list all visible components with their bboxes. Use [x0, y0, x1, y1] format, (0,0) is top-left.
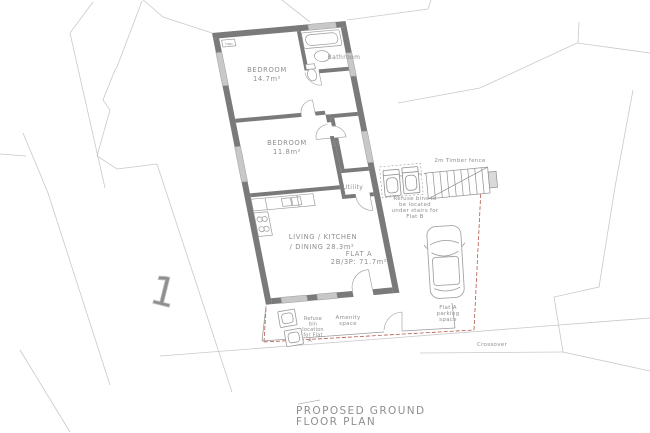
neighbour-plot-number: 1: [146, 267, 182, 318]
toilet-icon: [305, 64, 315, 70]
flat-name-label: FLAT A: [346, 250, 373, 258]
bedroom2-label: BEDROOM: [267, 139, 307, 147]
amenity-gate: [384, 312, 402, 331]
flat-spec-label: 2B/3P: 71.7m²: [331, 258, 387, 266]
utility-door: [356, 197, 373, 212]
site-context-lines: [0, 0, 650, 432]
fence-label: 2m Timber fence: [434, 158, 486, 164]
refuse-bins-flat-b: [380, 163, 424, 197]
entrance-door: [349, 270, 373, 291]
bedroom1-label: BEDROOM: [247, 66, 287, 74]
refuse-b-line4: Flat B: [406, 214, 424, 220]
bathroom-label: Bathroom: [328, 54, 361, 61]
bedroom2-door: [314, 124, 331, 139]
floor-plan-drawing: 1: [0, 0, 650, 433]
refuse-a-line4: for Flat: [303, 333, 322, 339]
living-label-line1: LIVING / KITCHEN: [289, 233, 357, 241]
bedroom2-area: 11.8m²: [273, 148, 301, 156]
bathtub-icon: [301, 30, 342, 49]
bedroom1-door: [299, 100, 316, 115]
storage-door: [332, 125, 346, 138]
refuse-bins-flat-a: [278, 308, 304, 347]
car-icon: [423, 225, 468, 299]
refuse-a-line5: A: [308, 338, 312, 344]
crossover-label: Crossover: [477, 342, 507, 348]
storage-label: ST: [332, 141, 340, 148]
title-leader-line: [298, 400, 320, 404]
cupboard-label: hwp: [225, 42, 233, 46]
bedroom1-area: 14.7m²: [253, 75, 281, 83]
external-staircase: [426, 166, 498, 199]
living-label-line2: / DINING 28.3m²: [290, 243, 355, 251]
drawing-title-line2: FLOOR PLAN: [296, 416, 376, 428]
floor-plan-page: 1: [0, 0, 650, 433]
parking-line3: space: [439, 317, 457, 323]
amenity-line2: space: [339, 321, 357, 327]
utility-label: Utility: [343, 184, 363, 191]
